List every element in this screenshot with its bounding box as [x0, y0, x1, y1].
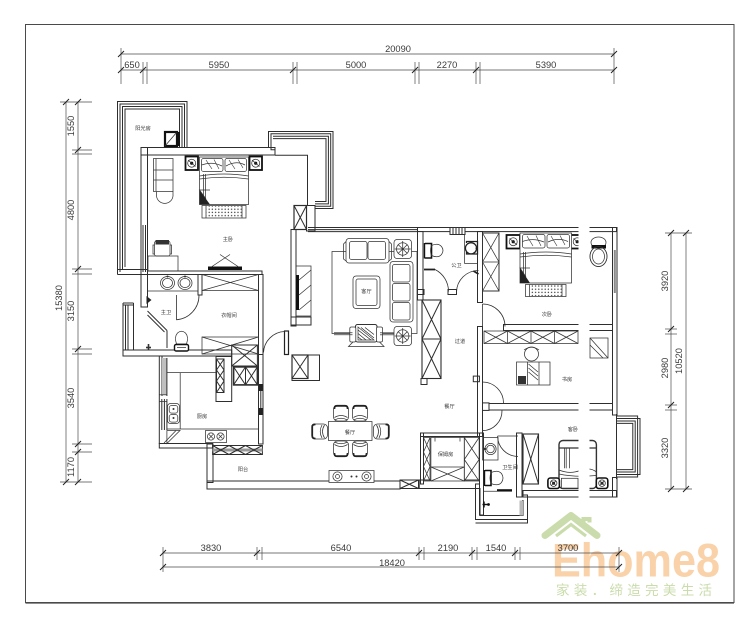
- svg-text:2980: 2980: [660, 358, 670, 379]
- svg-text:10520: 10520: [674, 348, 684, 374]
- svg-text:公卫: 公卫: [451, 262, 461, 269]
- svg-text:1550: 1550: [66, 116, 76, 137]
- svg-text:厨房: 厨房: [197, 412, 207, 420]
- svg-text:6540: 6540: [331, 543, 352, 553]
- svg-text:衣帽间: 衣帽间: [221, 311, 237, 319]
- svg-text:阳光房: 阳光房: [135, 124, 151, 132]
- svg-text:3320: 3320: [660, 438, 670, 459]
- svg-text:3150: 3150: [66, 301, 76, 322]
- svg-text:20090: 20090: [385, 44, 411, 54]
- svg-text:5950: 5950: [209, 60, 230, 70]
- svg-text:Ehome8: Ehome8: [552, 534, 720, 587]
- svg-text:5000: 5000: [346, 60, 367, 70]
- svg-text:1170: 1170: [66, 457, 76, 477]
- svg-text:保姆房: 保姆房: [438, 450, 454, 458]
- svg-text:3540: 3540: [66, 388, 76, 409]
- svg-text:餐厅: 餐厅: [444, 402, 454, 410]
- svg-text:家装．缔造完美生活: 家装．缔造完美生活: [556, 582, 712, 598]
- svg-text:书房: 书房: [562, 375, 572, 383]
- svg-text:5390: 5390: [536, 60, 557, 70]
- svg-text:主卧: 主卧: [223, 235, 233, 243]
- svg-text:餐厅: 餐厅: [345, 428, 355, 436]
- svg-text:2270: 2270: [437, 60, 458, 70]
- svg-text:过道: 过道: [455, 337, 465, 345]
- svg-text:1540: 1540: [486, 543, 507, 553]
- svg-text:15380: 15380: [54, 285, 64, 311]
- svg-text:客厅: 客厅: [361, 287, 371, 295]
- svg-text:3920: 3920: [660, 271, 670, 292]
- svg-text:客卧: 客卧: [568, 425, 578, 433]
- svg-text:3700: 3700: [558, 543, 579, 553]
- svg-text:4800: 4800: [66, 200, 76, 221]
- svg-text:3830: 3830: [201, 543, 222, 553]
- svg-text:阳台: 阳台: [238, 465, 248, 473]
- svg-text:18420: 18420: [379, 558, 405, 568]
- svg-text:卫生间: 卫生间: [502, 463, 518, 471]
- svg-text:次卧: 次卧: [542, 310, 552, 318]
- svg-text:主卫: 主卫: [161, 308, 171, 316]
- svg-text:2190: 2190: [438, 543, 459, 553]
- svg-text:650: 650: [124, 60, 140, 70]
